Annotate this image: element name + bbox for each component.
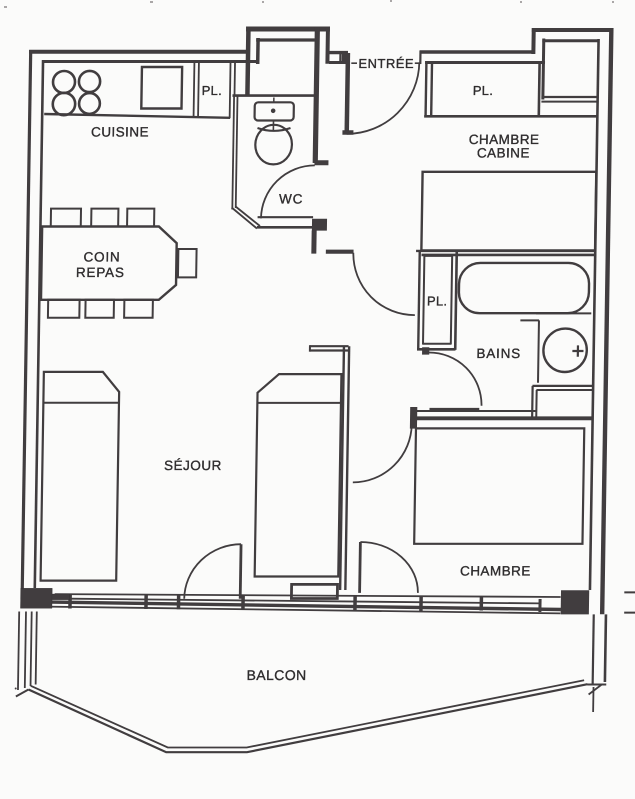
svg-text:COIN: COIN xyxy=(83,250,120,265)
svg-text:BALCON: BALCON xyxy=(246,667,306,683)
svg-text:PL.: PL. xyxy=(427,294,448,309)
svg-text:PL.: PL. xyxy=(202,83,223,98)
svg-text:ENTRÉE: ENTRÉE xyxy=(358,56,414,71)
svg-text:SÉJOUR: SÉJOUR xyxy=(164,458,222,473)
svg-text:BAINS: BAINS xyxy=(476,346,521,361)
svg-text:REPAS: REPAS xyxy=(76,265,125,280)
svg-text:CABINE: CABINE xyxy=(477,145,530,160)
svg-text:CUISINE: CUISINE xyxy=(91,125,149,140)
svg-text:WC: WC xyxy=(279,192,303,207)
svg-text:PL.: PL. xyxy=(473,83,494,98)
svg-text:CHAMBRE: CHAMBRE xyxy=(460,563,531,578)
